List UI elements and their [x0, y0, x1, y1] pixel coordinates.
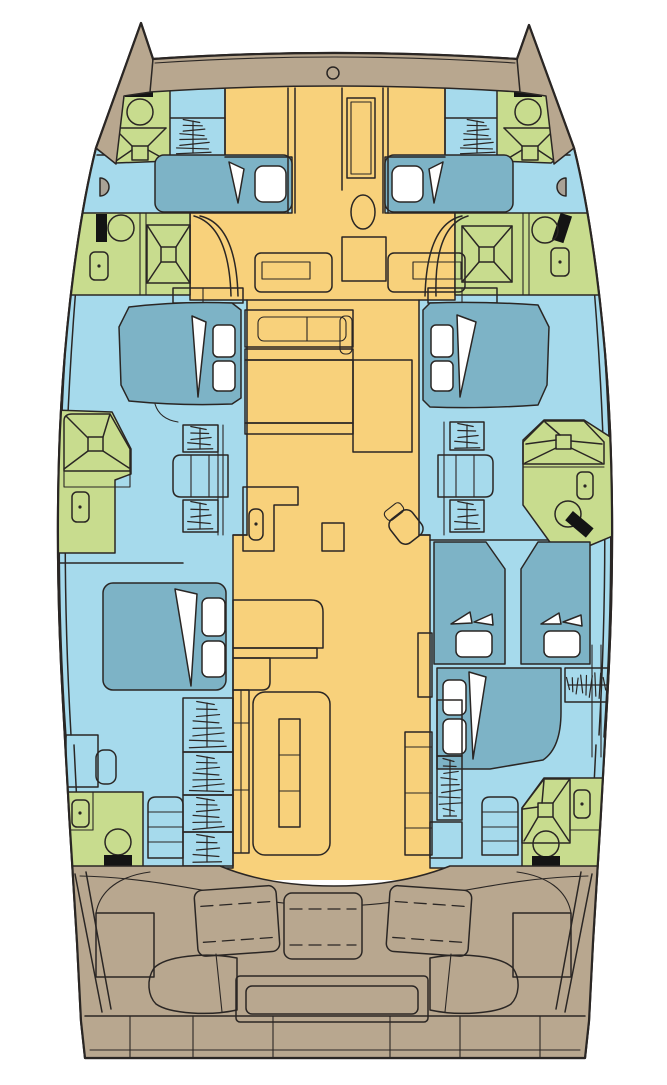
- port-bow-berth: [155, 155, 292, 212]
- pillow: [202, 641, 225, 677]
- toilet-tank: [96, 214, 107, 242]
- deck-hatch-icon: [327, 67, 339, 79]
- toilet-tank: [104, 855, 132, 866]
- pillow: [431, 325, 453, 357]
- bench-cushion: [386, 885, 472, 957]
- pillow: [456, 631, 492, 657]
- port-aft-head: [48, 792, 143, 868]
- starboard-forward-head: [455, 213, 610, 295]
- pillow: [431, 361, 453, 391]
- pillow: [392, 166, 423, 202]
- pillow: [544, 631, 580, 657]
- pillow: [202, 598, 225, 636]
- bench-cushion: [194, 885, 280, 957]
- pillow: [213, 325, 235, 357]
- cockpit: [30, 866, 640, 1070]
- catamaran-deck-plan-svg: [0, 0, 667, 1080]
- pillow: [255, 166, 286, 202]
- pillow: [213, 361, 235, 391]
- yacht-floor-plan: [0, 0, 667, 1080]
- starboard-aft-head: [522, 778, 610, 868]
- starboard-bow-berth: [385, 155, 513, 212]
- bench-cushion: [284, 893, 362, 959]
